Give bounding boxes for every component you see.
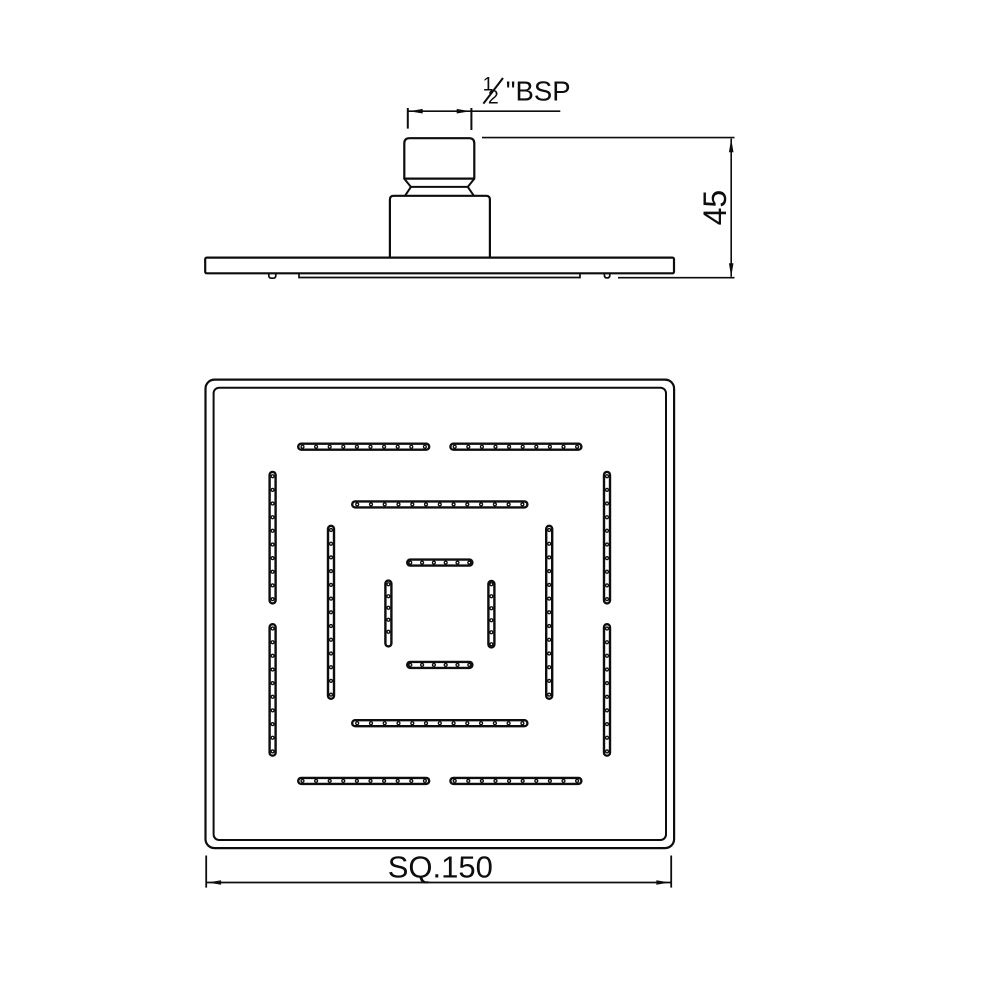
svg-text:2: 2 [488,87,499,109]
svg-text:SQ.150: SQ.150 [388,849,493,884]
svg-text:45: 45 [697,190,733,226]
svg-text:"BSP: "BSP [506,75,571,106]
